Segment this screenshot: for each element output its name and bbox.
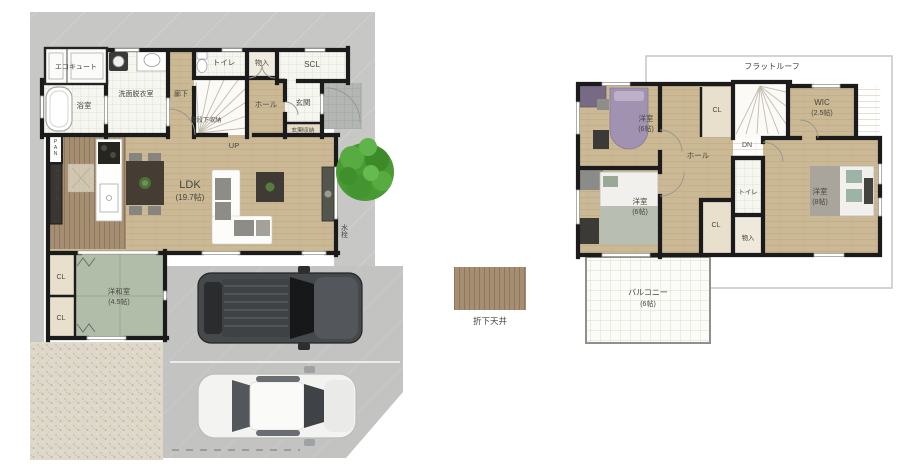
label-closet-2: CL [57,315,66,322]
label-faucet: 水栓 [341,223,349,239]
label-bedroom-e-size: (8帖) [812,197,828,206]
kitchen-rug-icon [68,164,94,192]
label-toilet-2f: トイレ [738,189,757,196]
label-flat-roof: フラットルーフ [744,62,800,71]
legend-lowered-ceiling: 折下天井 [454,267,526,326]
label-hall-1f: ホール [255,100,278,109]
label-entrance: 玄関 [296,97,311,107]
floor-plan-page: エコキュート 浴室 洗面脱衣室 廊下 トイレ 物入 SCL ホール 玄関 玄関収… [0,0,900,467]
label-scl: SCL [304,60,320,69]
living-rug-icon [256,172,284,202]
vanity-sink-icon [137,50,167,71]
label-wic: WIC [814,98,830,107]
car-sedan [198,366,356,446]
label-ecocute: エコキュート [55,63,97,71]
label-hall-2f: ホール [687,151,710,160]
floor-plan-drawing: エコキュート 浴室 洗面脱衣室 廊下 トイレ 物入 SCL ホール 玄関 玄関収… [0,0,900,467]
legend-label: 折下天井 [473,316,507,326]
second-floor-plan: フラットルーフ [577,56,893,343]
label-closet-1: CL [57,274,66,281]
label-bedroom-nw: 洋室 [639,113,654,123]
label-bedroom-sw-size: (6帖) [632,207,648,216]
storage-2f-floor [733,215,763,253]
label-up: UP [229,141,239,150]
label-ldk-size: (19.7帖) [176,192,205,202]
label-cupboard: カップボード [53,168,60,202]
bathtub-icon [46,87,72,131]
label-closet-top: CL [713,107,722,114]
toilet-2f-floor [733,158,763,215]
label-toilet-1f: トイレ [213,58,236,67]
label-ldk: LDK [179,179,201,191]
label-balcony: バルコニー [628,288,668,297]
label-japanese-room: 洋和室 [108,286,131,296]
label-washroom: 洗面脱衣室 [119,89,154,98]
label-storage-1f: 物入 [255,58,269,67]
label-bedroom-sw: 洋室 [633,196,648,206]
toilet-icon [197,52,207,73]
label-japanese-room-size: (4.5帖) [108,297,129,306]
washing-machine-icon [109,52,128,71]
label-bedroom-e: 洋室 [813,186,828,196]
car-suv [198,266,362,350]
label-pantry: PAN [53,139,59,157]
label-bedroom-nw-size: (6帖) [638,124,654,133]
label-balcony-size: (6帖) [640,299,656,308]
gravel-garden [30,342,163,460]
label-entrance-storage: 玄関収納 [291,126,314,134]
balcony-floor [586,257,710,343]
first-floor-plan: エコキュート 浴室 洗面脱衣室 廊下 トイレ 物入 SCL ホール 玄関 玄関収… [30,12,403,460]
label-storage-2f: 物入 [742,233,755,242]
label-under-stair-storage: 階段下収納 [191,116,222,124]
label-closet-bottom: CL [712,222,721,229]
tv-board-icon [322,167,334,221]
kitchen-counter-icon [96,139,122,221]
label-wic-size: (2.5帖) [811,108,832,117]
label-corridor: 廊下 [174,89,188,98]
label-bath: 浴室 [77,100,92,110]
label-dn: DN [742,142,752,149]
